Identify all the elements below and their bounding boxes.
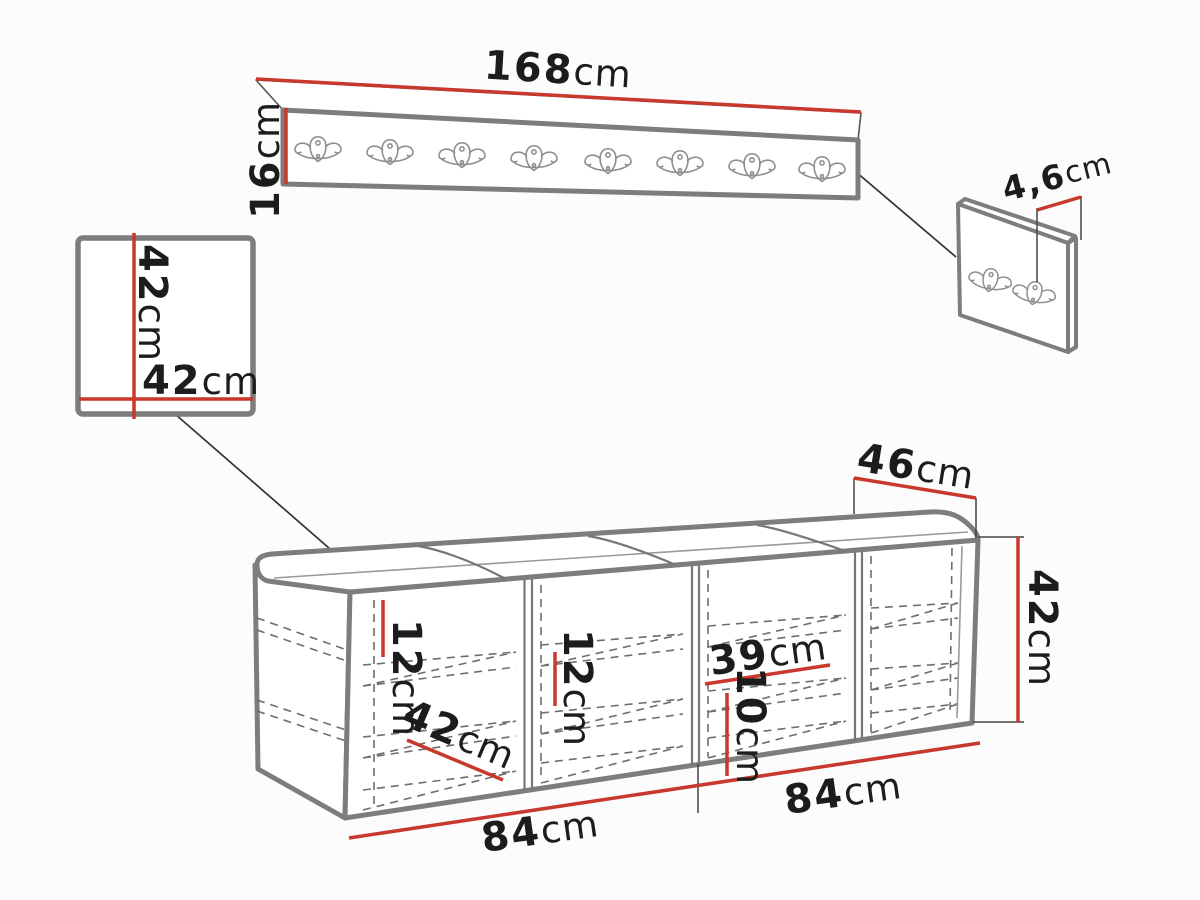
- leader-square-panel-to-bench: [175, 414, 345, 562]
- bottom-width-left-label: 84cm: [478, 800, 601, 862]
- furniture-dimension-diagram: 168cm 16cm 4,6cm 42cm 42cm 46cm 42cm 12c…: [0, 0, 1200, 900]
- square-height-label: 42cm: [129, 244, 175, 362]
- diagram-canvas: 168cm 16cm 4,6cm 42cm 42cm 46cm 42cm 12c…: [0, 0, 1200, 900]
- niche-height-label: 10cm: [727, 667, 773, 785]
- storage-bench: [255, 478, 1024, 838]
- bench-left-side-panel: [255, 565, 350, 818]
- hook-panel: [958, 196, 1081, 352]
- square-width-label: 42cm: [142, 358, 260, 404]
- coat-rack: [256, 79, 861, 198]
- bench-height-label: 42cm: [1019, 569, 1065, 687]
- rack-width-label: 168cm: [483, 43, 633, 98]
- rack-height-label: 16cm: [243, 101, 289, 219]
- shelf-gap-middle-label: 12cm: [554, 629, 600, 747]
- panel-depth-label: 4,6cm: [998, 144, 1116, 209]
